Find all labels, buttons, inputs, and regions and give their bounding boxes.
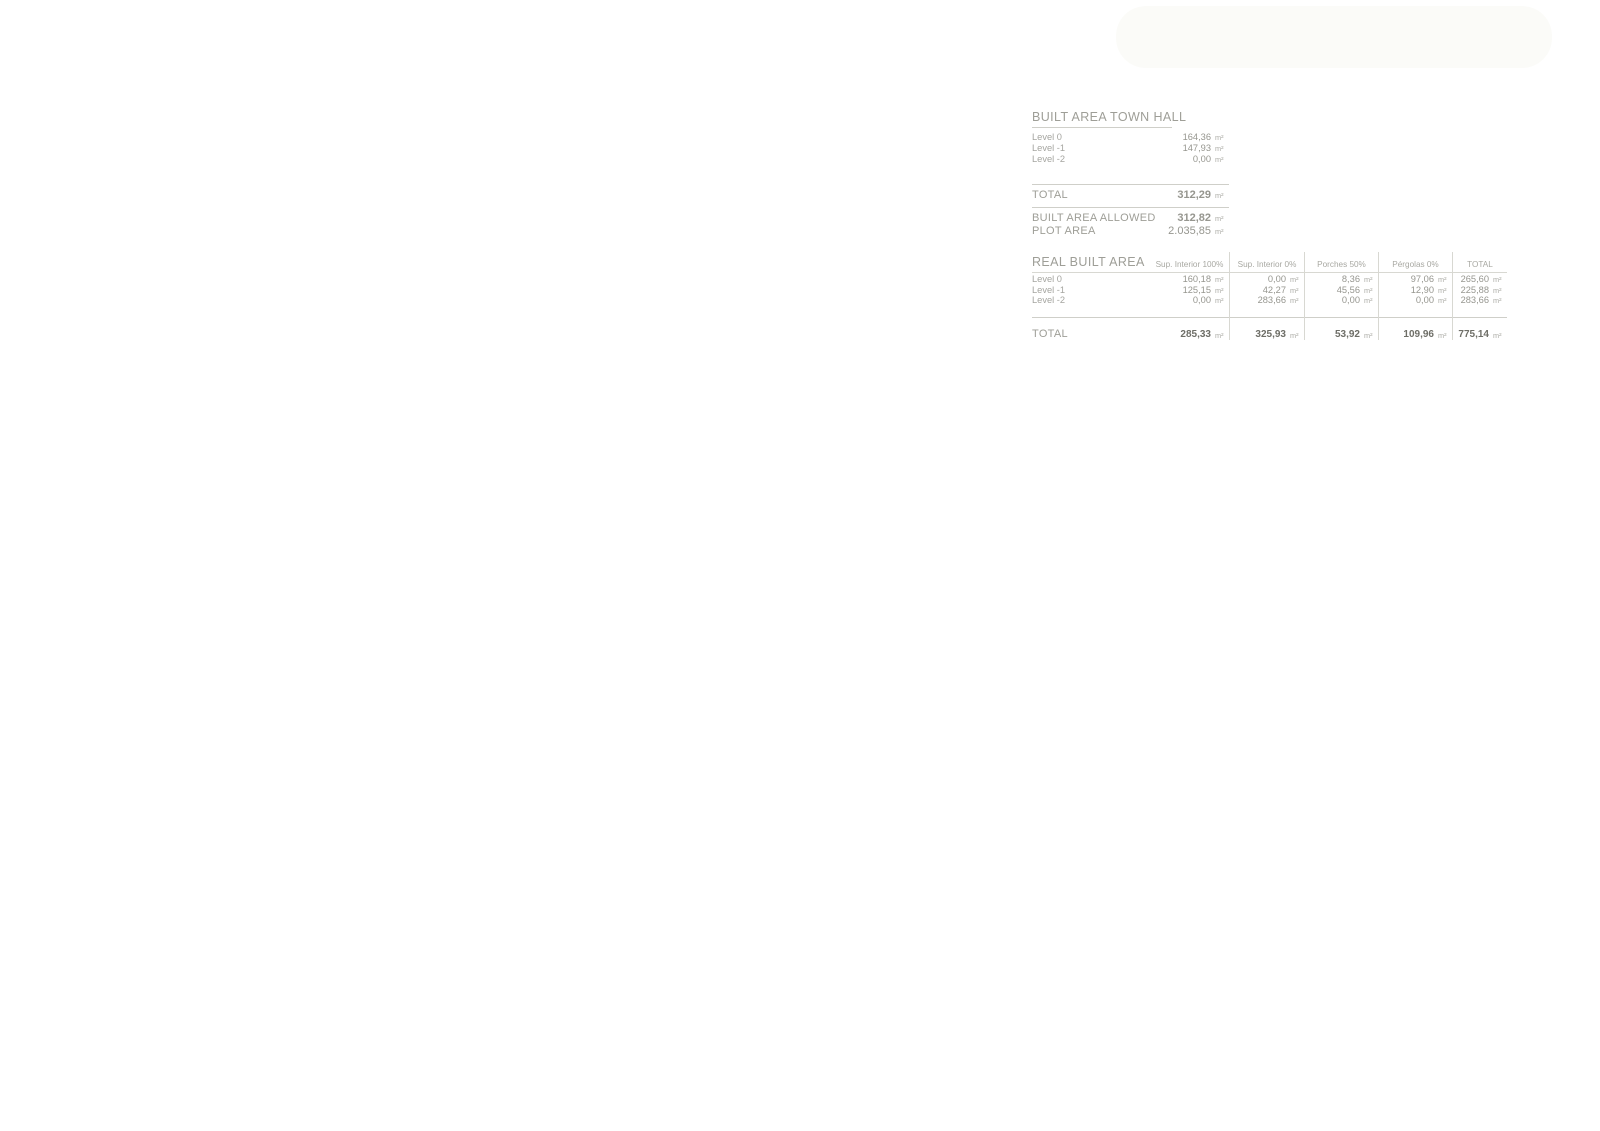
col-total: TOTAL 265,60m² 225,88m² 283,66m² 775,14m… — [1452, 252, 1507, 340]
total-row: TOTAL 312,29 m² — [1032, 189, 1229, 202]
col-sup-interior-0: Sup. Interior 0% 0,00m² 42,27m² 283,66m²… — [1229, 252, 1304, 340]
real-built-area-table: REAL BUILT AREA Level 0 Level -1 Level -… — [1032, 252, 1507, 340]
table-title: BUILT AREA TOWN HALL — [1032, 110, 1172, 128]
col-porches: Porches 50% 8,36m² 45,56m² 0,00m² 53,92m… — [1304, 252, 1378, 340]
allowed-row: BUILT AREA ALLOWED 312,82 m² — [1032, 212, 1229, 225]
plot-area-row: PLOT AREA 2.035,85 m² — [1032, 225, 1229, 238]
table-row: Level 0 164,36 m² — [1032, 132, 1229, 143]
site-plan — [0, 0, 1600, 1131]
col-sup-interior-100: Sup. Interior 100% 160,18m² 125,15m² 0,0… — [1150, 252, 1229, 340]
table-row: Level -2 0,00 m² — [1032, 154, 1229, 165]
table-row: Level -1 147,93 m² — [1032, 143, 1229, 154]
col-pergolas: Pérgolas 0% 97,06m² 12,90m² 0,00m² 109,9… — [1378, 252, 1452, 340]
drawing-sheet: BUILT AREA TOWN HALL Level 0 164,36 m² L… — [0, 0, 1600, 1131]
label-column: REAL BUILT AREA Level 0 Level -1 Level -… — [1032, 252, 1150, 340]
logo-placeholder — [1116, 6, 1552, 68]
built-area-town-hall-table: BUILT AREA TOWN HALL Level 0 164,36 m² L… — [1032, 110, 1229, 238]
